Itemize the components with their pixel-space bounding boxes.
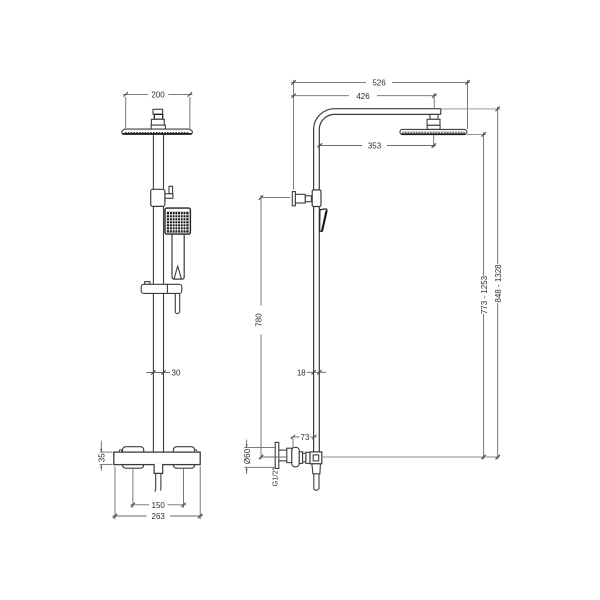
svg-text:G1/2": G1/2" (270, 467, 279, 486)
svg-text:353: 353 (368, 142, 382, 151)
svg-text:848 - 1328: 848 - 1328 (494, 264, 503, 303)
svg-text:30: 30 (172, 369, 181, 378)
svg-text:73: 73 (301, 433, 310, 442)
svg-text:200: 200 (151, 91, 165, 100)
svg-text:780: 780 (255, 313, 264, 327)
svg-text:773 - 1253: 773 - 1253 (480, 275, 489, 314)
svg-text:150: 150 (152, 501, 166, 510)
svg-text:426: 426 (356, 92, 370, 101)
svg-text:526: 526 (372, 79, 386, 88)
svg-text:35: 35 (97, 453, 106, 462)
svg-text:Ø60: Ø60 (243, 448, 252, 464)
svg-text:263: 263 (152, 512, 166, 521)
svg-text:18: 18 (297, 369, 306, 378)
